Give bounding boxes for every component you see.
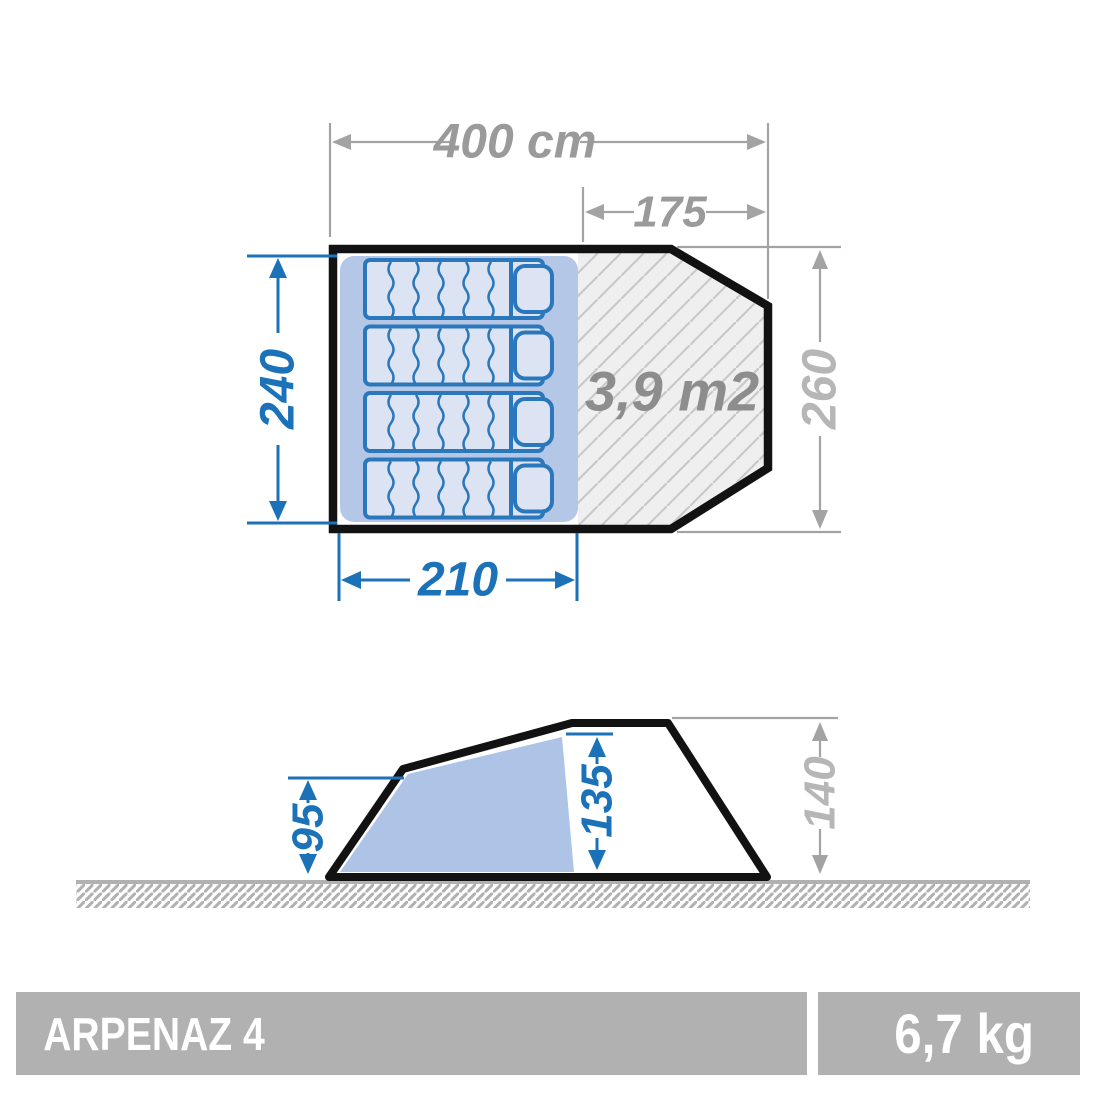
entrance-height-label: 95 (284, 803, 333, 852)
mattress-3 (365, 393, 552, 451)
bedroom-length-label: 210 (417, 554, 498, 607)
total-width-label: 400 cm (433, 116, 597, 169)
mattress-2 (365, 327, 552, 385)
side-view: 95 135 140 (76, 718, 1030, 908)
ground (76, 880, 1030, 908)
mattress-4 (365, 460, 552, 518)
peak-height-label: 140 (796, 756, 845, 830)
weight-value: 6,7 kg (895, 1001, 1080, 1066)
dim-bedroom-width: 240 (247, 256, 337, 523)
dim-bedroom-length: 210 (339, 533, 577, 607)
diagram-canvas: 3,9 m2 400 cm 175 (0, 0, 1100, 985)
model-name-bar: ARPENAZ 4 (16, 992, 807, 1075)
weight-bar: 6,7 kg (818, 992, 1080, 1075)
total-depth-label: 260 (794, 349, 847, 430)
porch-depth-label: 175 (633, 188, 707, 237)
tent-dimension-diagram: 3,9 m2 400 cm 175 (0, 0, 1100, 1100)
bedroom-width-label: 240 (252, 349, 305, 430)
living-area-label: 3,9 m2 (585, 360, 759, 423)
dim-porch-depth: 175 (583, 187, 766, 242)
mattress-1 (365, 260, 552, 318)
top-view: 3,9 m2 400 cm 175 (247, 116, 847, 607)
bedroom-height-label: 135 (573, 764, 622, 838)
model-name: ARPENAZ 4 (16, 1007, 265, 1061)
